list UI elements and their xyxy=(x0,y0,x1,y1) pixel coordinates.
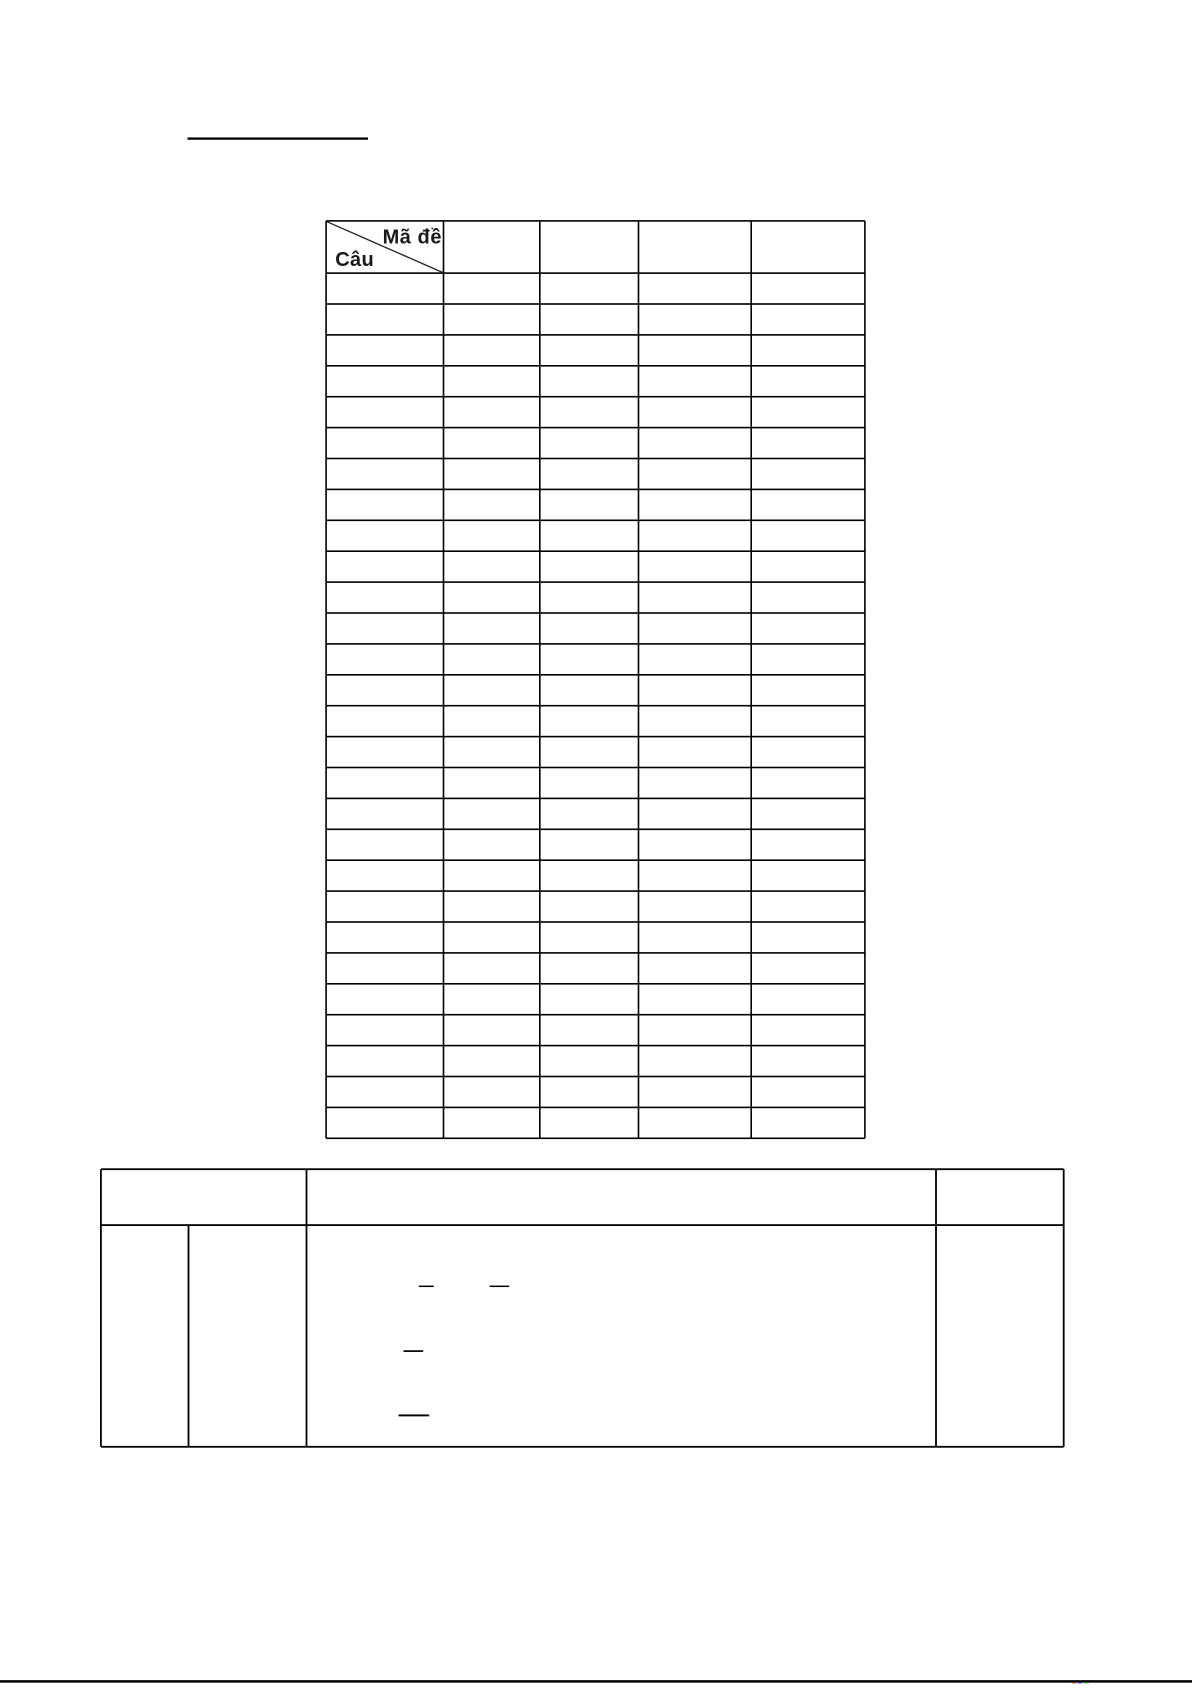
svg-text:Câu: Câu xyxy=(335,249,374,271)
svg-text:Mã đề: Mã đề xyxy=(383,227,442,249)
